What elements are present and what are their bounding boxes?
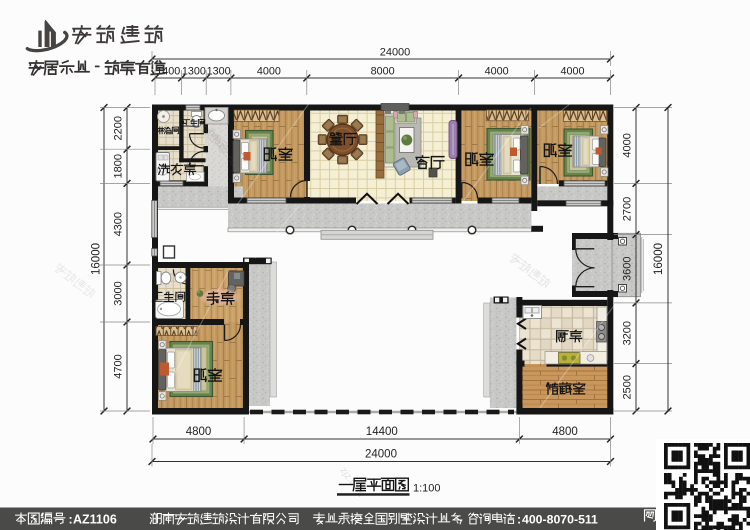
svg-text:2700: 2700: [622, 197, 634, 221]
svg-text:4000: 4000: [560, 66, 584, 78]
svg-text:1300: 1300: [207, 66, 231, 78]
svg-text:4000: 4000: [622, 133, 634, 157]
svg-text:3600: 3600: [622, 257, 634, 281]
svg-text:400-8070-511: 400-8070-511: [522, 513, 598, 527]
svg-text:24000: 24000: [380, 47, 411, 59]
svg-text:1400: 1400: [156, 66, 180, 78]
svg-text:2500: 2500: [622, 375, 634, 399]
svg-text:4800: 4800: [186, 426, 212, 438]
svg-text:AZ1106: AZ1106: [73, 513, 117, 527]
svg-text:3000: 3000: [113, 281, 125, 305]
svg-text:8000: 8000: [371, 66, 395, 78]
svg-text:4800: 4800: [552, 426, 578, 438]
svg-text:3200: 3200: [622, 321, 634, 345]
svg-text:16000: 16000: [91, 243, 103, 275]
svg-text:4000: 4000: [257, 66, 281, 78]
svg-text:1:100: 1:100: [413, 483, 441, 495]
svg-text:4700: 4700: [113, 354, 125, 378]
svg-text:14400: 14400: [366, 426, 398, 438]
svg-text::: :: [517, 513, 521, 527]
svg-text:4000: 4000: [485, 66, 509, 78]
svg-text:2200: 2200: [113, 116, 125, 140]
svg-text:1800: 1800: [113, 154, 125, 178]
svg-text:24000: 24000: [365, 449, 397, 461]
svg-text:4300: 4300: [113, 212, 125, 236]
svg-text:1300: 1300: [182, 66, 206, 78]
svg-text:16000: 16000: [653, 243, 665, 275]
